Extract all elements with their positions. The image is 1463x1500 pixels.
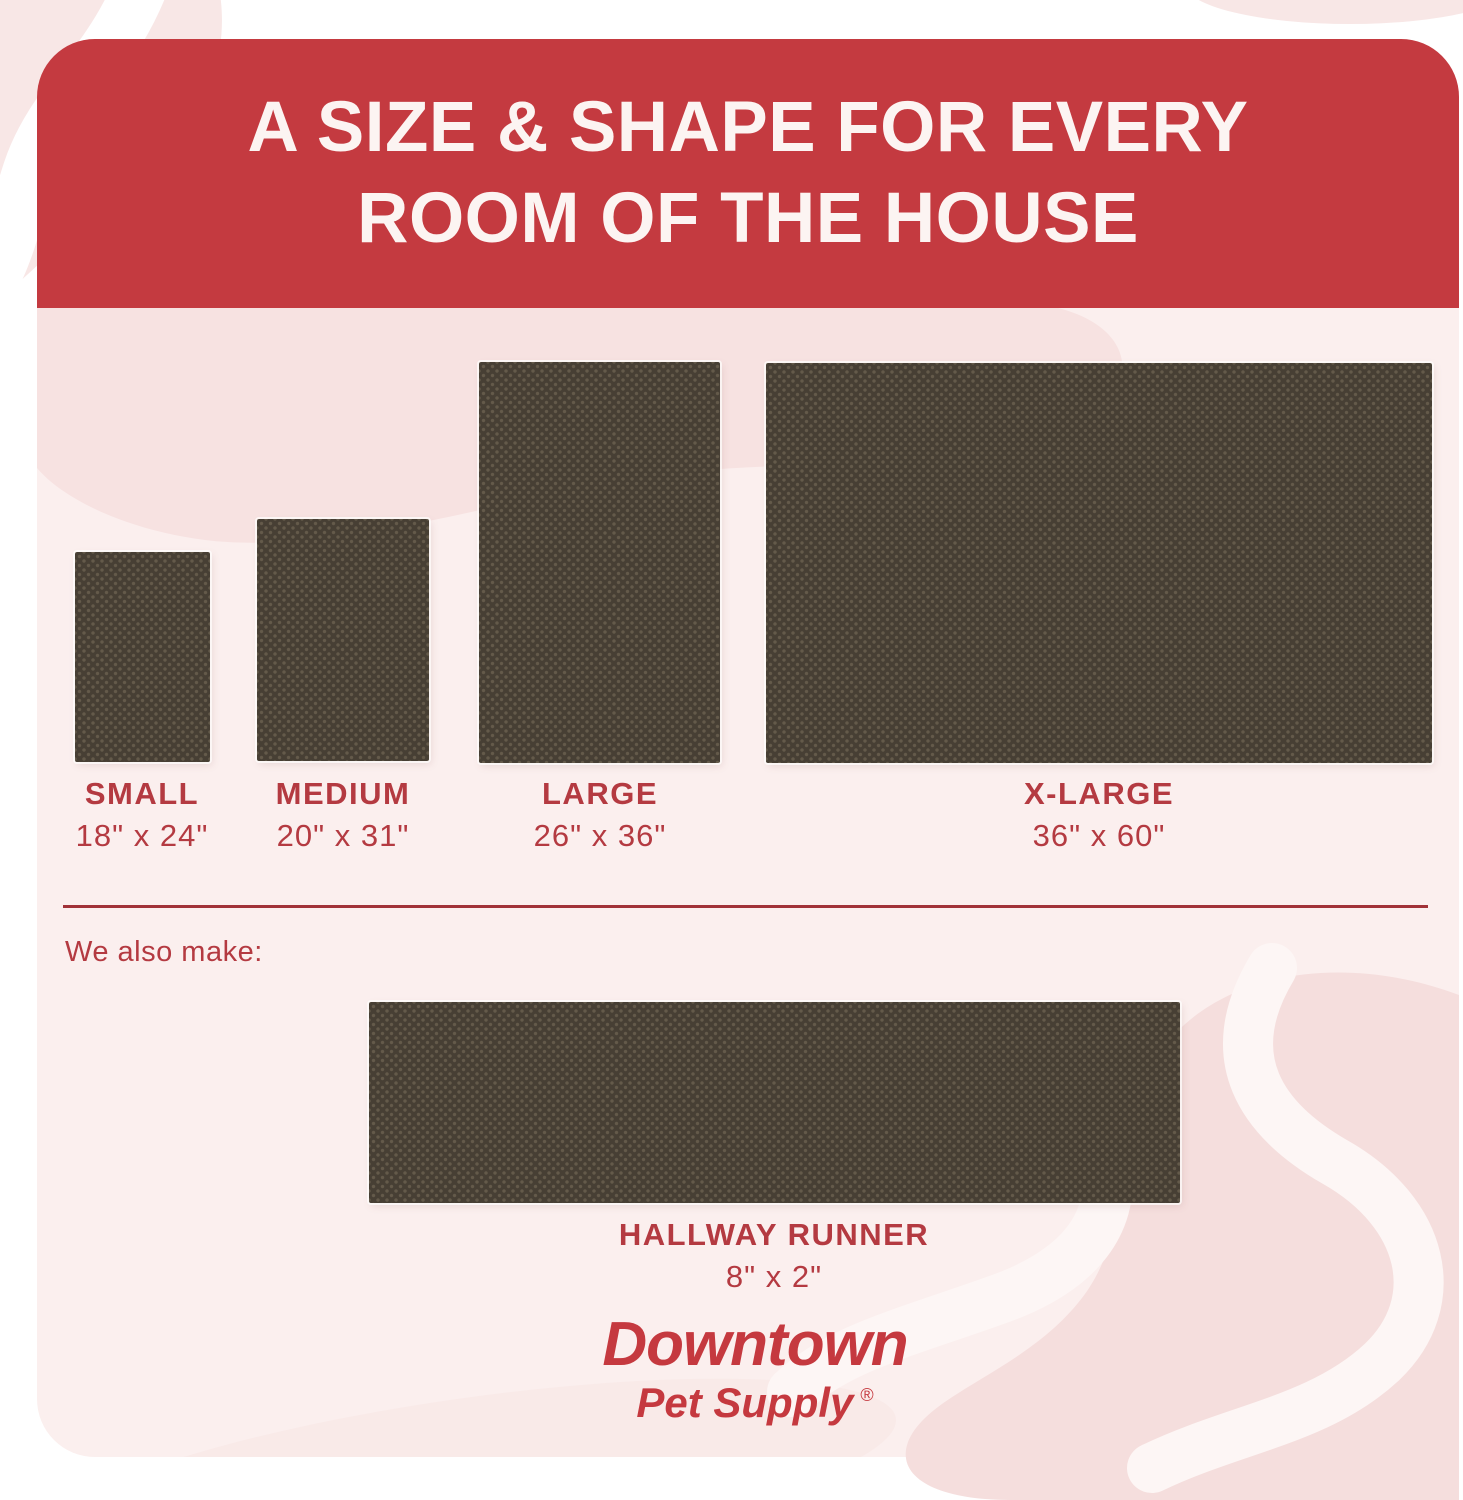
size-dimensions: 36" x 60" — [924, 819, 1274, 853]
header-banner: A SIZE & SHAPE FOR EVERY ROOM OF THE HOU… — [37, 39, 1459, 308]
size-label-large: LARGE 26" x 36" — [425, 777, 775, 853]
rug-swatch-x-large — [766, 363, 1432, 763]
size-dimensions: 26" x 36" — [425, 819, 775, 853]
size-dimensions: 8" x 2" — [599, 1260, 949, 1294]
brand-subtitle-text: Pet Supply — [636, 1379, 853, 1426]
size-label-hallway-runner: HALLWAY RUNNER 8" x 2" — [599, 1218, 949, 1294]
size-chart-infographic: A SIZE & SHAPE FOR EVERY ROOM OF THE HOU… — [0, 0, 1463, 1500]
rug-swatch-medium — [257, 519, 429, 761]
also-make-label: We also make: — [65, 936, 263, 969]
page-title-line-1: A SIZE & SHAPE FOR EVERY — [248, 83, 1249, 174]
registered-mark-icon: ® — [860, 1385, 873, 1405]
rug-swatch-large — [479, 362, 720, 763]
page-title-line-2: ROOM OF THE HOUSE — [357, 174, 1139, 265]
size-name: X-LARGE — [924, 777, 1274, 811]
size-label-x-large: X-LARGE 36" x 60" — [924, 777, 1274, 853]
brand-logo: Downtown Pet Supply® — [602, 1312, 907, 1426]
brand-subtitle: Pet Supply® — [602, 1380, 907, 1426]
divider-line — [63, 905, 1428, 908]
size-name: LARGE — [425, 777, 775, 811]
brand-name: Downtown — [602, 1312, 907, 1377]
swoosh-top-right — [1185, 0, 1463, 24]
size-name: HALLWAY RUNNER — [599, 1218, 949, 1252]
rug-swatch-small — [75, 552, 210, 762]
rug-swatch-hallway-runner — [369, 1002, 1180, 1203]
